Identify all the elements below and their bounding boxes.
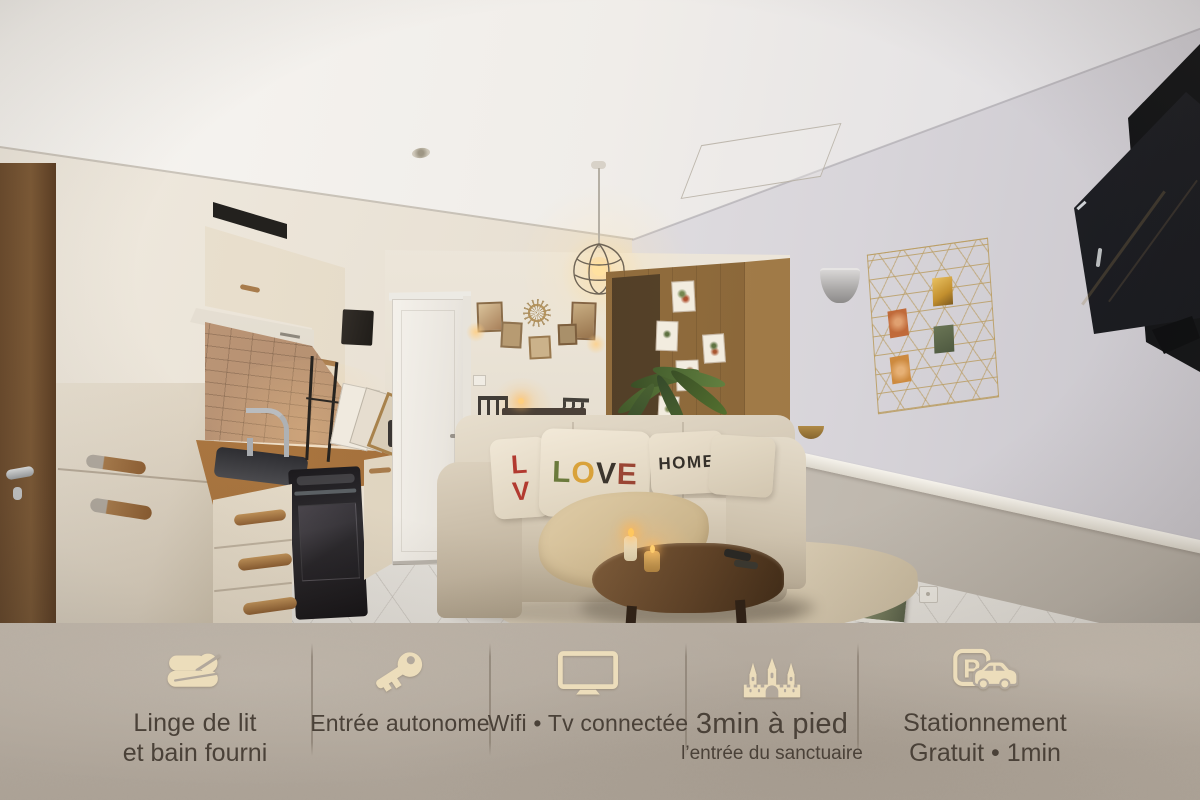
wall-frame-2 bbox=[500, 321, 522, 348]
wire-grid-board bbox=[867, 238, 999, 415]
candle-jar bbox=[644, 551, 660, 572]
amenity-self-checkin-line1: Entrée autonome bbox=[300, 708, 500, 738]
pillow-plain bbox=[708, 434, 776, 498]
botanical-print-2 bbox=[655, 321, 678, 352]
oven-controls bbox=[296, 474, 354, 486]
grid-card-orange bbox=[890, 354, 912, 384]
light-switch bbox=[473, 375, 486, 386]
amenity-linens-line2: et bain fourni bbox=[55, 738, 335, 768]
faucet-base bbox=[247, 438, 253, 456]
listing-photo-card: L V L O V E HOME bbox=[0, 0, 1200, 800]
towels-icon bbox=[55, 635, 335, 701]
botanical-print-5 bbox=[702, 333, 726, 363]
candle-pillar-flame bbox=[628, 528, 634, 537]
sunburst-mirror bbox=[523, 299, 551, 327]
key-icon bbox=[300, 635, 500, 701]
pillow-home-text: HOME bbox=[658, 452, 716, 475]
amenity-wifi-tv: Wifi • Tv connectée bbox=[478, 635, 698, 738]
table-leg-2 bbox=[735, 600, 747, 623]
apartment-photo: L V L O V E HOME bbox=[0, 0, 1200, 623]
pillow-lv-letter-l: L bbox=[510, 451, 528, 479]
pillow-love-letter-2: O bbox=[571, 456, 597, 491]
grid-card-olive bbox=[934, 324, 955, 353]
table-leg-1 bbox=[625, 606, 637, 623]
amenity-parking-line1: Stationnement bbox=[860, 708, 1110, 738]
entry-door bbox=[0, 163, 56, 623]
wall-frame-3 bbox=[528, 335, 551, 359]
coffee-table bbox=[592, 543, 784, 613]
candle-jar-flame bbox=[650, 545, 655, 553]
amenity-parking-line2: Gratuit • 1min bbox=[860, 738, 1110, 768]
print-art bbox=[707, 339, 720, 357]
pillow-lv-letter-v: V bbox=[511, 477, 530, 505]
amenity-sanctuary-distance: 3min à pied l’entrée du sanctuaire bbox=[672, 635, 872, 767]
amenity-parking: P Stationnement Gratuit • 1min bbox=[860, 635, 1110, 768]
parking-icon: P bbox=[860, 635, 1110, 701]
oven-handle bbox=[294, 488, 356, 495]
outlet-hole bbox=[926, 592, 930, 596]
print-art bbox=[677, 287, 691, 305]
amenities-banner: Linge de lit et bain fourni Entrée auton… bbox=[0, 623, 1200, 800]
grid-card-rust bbox=[887, 308, 909, 338]
church-icon bbox=[672, 635, 872, 701]
wall-frame-5 bbox=[558, 324, 578, 346]
pendant-cord bbox=[598, 168, 600, 248]
wall-outlet-right bbox=[919, 586, 938, 603]
pillow-love-letter-1: L bbox=[552, 456, 573, 491]
wall-frame-1 bbox=[476, 302, 503, 333]
print-art bbox=[661, 327, 674, 343]
amenity-sanctuary-line2: l’entrée du sanctuaire bbox=[672, 741, 872, 767]
botanical-print-1 bbox=[671, 280, 696, 312]
microwave bbox=[341, 309, 374, 346]
oven-glass bbox=[298, 502, 360, 581]
fridge-cabinet bbox=[56, 383, 214, 623]
amenity-self-checkin: Entrée autonome bbox=[300, 635, 500, 738]
candle-pillar bbox=[624, 536, 637, 561]
amenity-sanctuary-line1: 3min à pied bbox=[672, 708, 872, 741]
amenity-wifi-tv-line1: Wifi • Tv connectée bbox=[478, 708, 698, 738]
amenity-linens-line1: Linge de lit bbox=[55, 708, 335, 738]
amenity-linens: Linge de lit et bain fourni bbox=[55, 635, 335, 768]
dining-candle-flame bbox=[518, 398, 524, 404]
grid-card-mustard bbox=[932, 276, 953, 306]
oven bbox=[288, 466, 368, 620]
entry-door-lock bbox=[13, 487, 22, 500]
pillow-love-letter-3: V bbox=[595, 457, 617, 492]
tv-icon bbox=[478, 635, 698, 701]
pillow-love-letter-4: E bbox=[616, 458, 638, 493]
